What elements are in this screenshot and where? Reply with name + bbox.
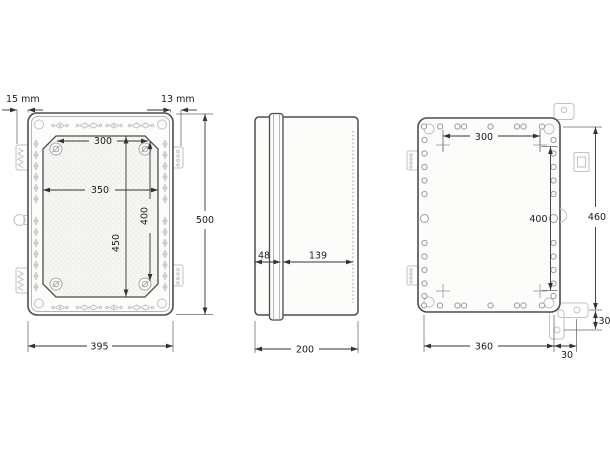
front-left-latch-top [16,145,29,170]
dim-label-front-350: 350 [91,185,109,196]
side-lid-rib [270,114,284,321]
front-view: 15 mm 13 mm 300 350 450 [2,94,214,353]
dim-label-front-400: 400 [140,207,151,225]
dim-label-back-300: 300 [475,132,493,143]
dim-front-overall-height: 500 [176,114,214,315]
back-bracket-top [554,104,574,120]
front-left-hinge [14,215,29,226]
front-left-latch-bottom [16,268,29,293]
dim-label-back-30v: 30 [599,316,610,327]
dim-back-bracket-span-h: 360 [424,315,554,353]
dim-label-front-500: 500 [196,215,214,226]
back-left-latch-top [407,151,418,170]
dim-label-side-139: 139 [309,251,327,262]
dim-label-back-400: 400 [529,214,547,225]
dim-label-back-460: 460 [588,212,606,223]
dim-label-side-200: 200 [296,345,314,356]
dim-label-back-360: 360 [475,342,493,353]
dim-back-bracket-offset-h: 30 [554,319,577,361]
dim-label-offset-left: 15 mm [6,94,40,105]
dim-side-overall-depth: 200 [255,321,358,356]
dim-back-bracket-span-v: 460 [563,127,606,310]
dim-back-bracket-offset-v: 30 [564,310,610,330]
dim-label-front-300: 300 [94,136,112,147]
back-view: 300 400 460 30 360 [407,104,610,362]
dim-front-overall-width: 395 [28,321,173,353]
back-left-latch-bottom [407,266,418,285]
drawing-canvas: 15 mm 13 mm 300 350 450 [0,0,610,450]
dim-label-side-48: 48 [258,251,270,262]
dim-label-front-395: 395 [90,342,108,353]
side-view: 48 139 200 [255,114,358,356]
dim-label-front-450: 450 [111,234,122,252]
back-right-hinge-bracket [560,153,589,223]
dim-label-offset-right: 13 mm [161,94,195,105]
technical-drawing: 15 mm 13 mm 300 350 450 [0,0,610,450]
dim-label-back-30h: 30 [561,350,573,361]
